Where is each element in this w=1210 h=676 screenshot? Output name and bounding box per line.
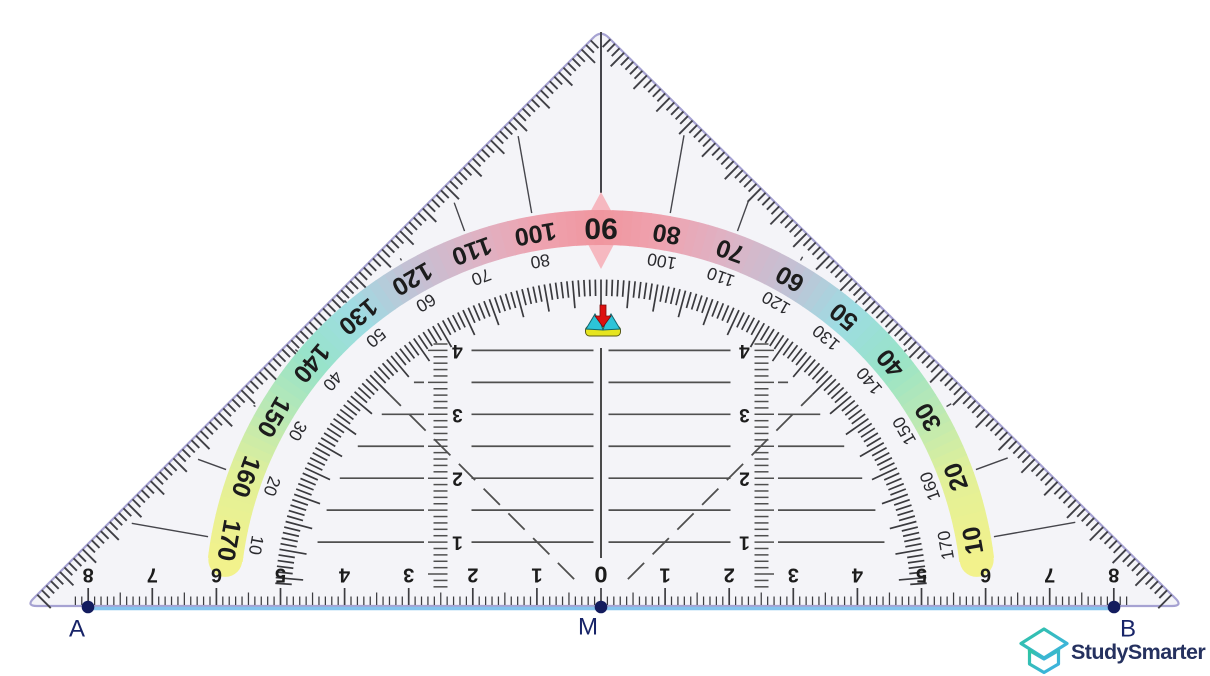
ruler-number-3: 3 xyxy=(403,564,414,586)
ruler-number-1: 1 xyxy=(660,564,671,586)
point-m xyxy=(595,601,608,614)
point-label-b: B xyxy=(1120,616,1136,643)
parallel-scale-number-right: 3 xyxy=(739,404,750,425)
geometry-illustration: 1017020160301504014050130601207011080100… xyxy=(0,0,1210,676)
ruler-number-8: 8 xyxy=(1108,564,1119,586)
parallel-scale-number-right: 4 xyxy=(739,340,750,361)
ruler-number-7: 7 xyxy=(1044,564,1055,586)
point-a xyxy=(82,601,95,614)
point-label-m: M xyxy=(578,614,598,641)
studysmarter-logo: StudySmarter xyxy=(1021,629,1206,673)
parallel-scale-number-right: 2 xyxy=(739,468,750,489)
degree-label-outer-80: 80 xyxy=(651,218,683,250)
ruler-number-5: 5 xyxy=(275,564,286,586)
ruler-number-4: 4 xyxy=(851,564,863,586)
parallel-scale-number-left: 2 xyxy=(452,468,463,489)
ruler-number-6: 6 xyxy=(980,564,991,586)
parallel-scale-number-left: 1 xyxy=(452,532,463,553)
parallel-scale-number-left: 3 xyxy=(452,404,463,425)
parallel-scale-number-left: 4 xyxy=(452,340,463,361)
ruler-number-8: 8 xyxy=(83,564,94,586)
point-label-a: A xyxy=(69,616,85,643)
ruler-number-1: 1 xyxy=(531,564,542,586)
set-square-on-segment-scene: 1017020160301504014050130601207011080100… xyxy=(0,0,1210,676)
parallel-scale-number-right: 1 xyxy=(739,532,750,553)
ruler-number-3: 3 xyxy=(788,564,799,586)
degree-label-outer-10: 10 xyxy=(957,524,989,556)
studysmarter-logo-icon xyxy=(1021,629,1067,673)
degree-label-inner-10: 10 xyxy=(245,534,268,557)
degree-label-outer-90: 90 xyxy=(584,212,617,245)
ruler-number-5: 5 xyxy=(916,564,927,586)
ruler-number-4: 4 xyxy=(338,564,350,586)
studysmarter-logo-text: StudySmarter xyxy=(1071,640,1206,664)
ruler-number-6: 6 xyxy=(211,564,222,586)
ruler-number-0: 0 xyxy=(594,562,607,588)
ruler-number-7: 7 xyxy=(147,564,158,586)
logo-box-opening xyxy=(1030,651,1059,660)
point-b xyxy=(1108,601,1121,614)
degree-label-inner-80: 80 xyxy=(529,250,552,273)
ruler-number-2: 2 xyxy=(467,564,478,586)
ruler-number-2: 2 xyxy=(724,564,735,586)
